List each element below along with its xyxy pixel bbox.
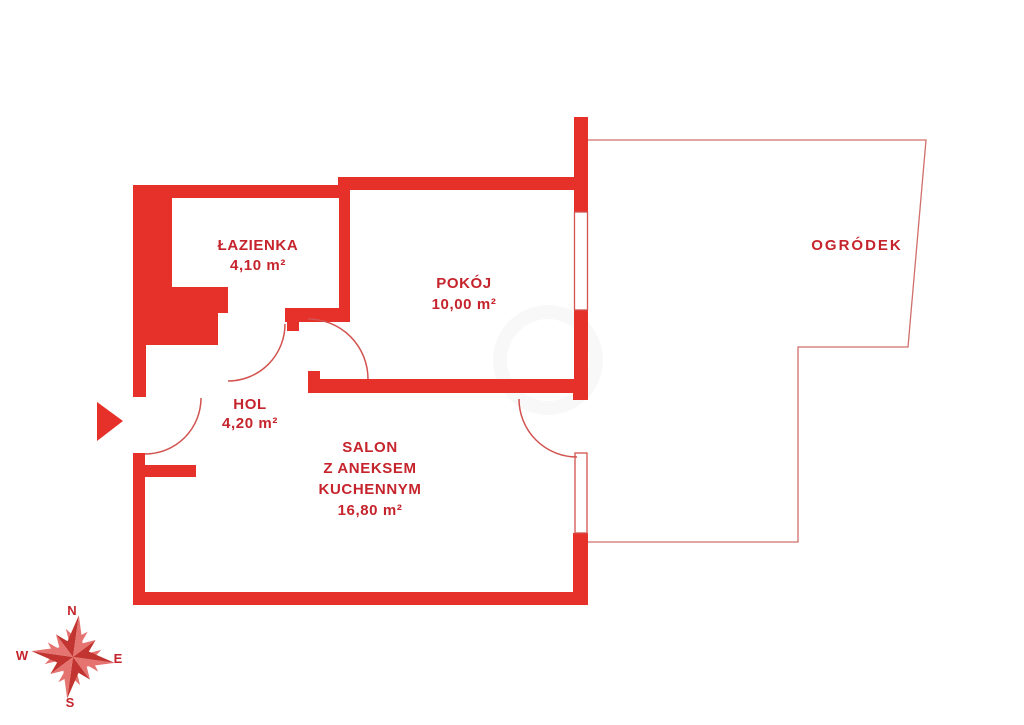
bathroom-door-arc <box>228 324 285 381</box>
wall-bottom <box>133 592 588 605</box>
hol-stub-wall <box>143 465 196 477</box>
pokoj-window <box>575 212 588 310</box>
salon-pokoj-divider-wall <box>308 379 574 393</box>
pokoj-door-arc <box>308 319 368 379</box>
divider-left-stub <box>308 371 320 379</box>
entrance-arrow-icon <box>97 402 123 441</box>
room-name: Z ANEKSEM <box>285 458 455 479</box>
room-name: HOL <box>190 395 310 414</box>
room-area: 16,80 m² <box>285 500 455 521</box>
bathroom-step-wall-lower <box>172 313 218 345</box>
compass-east-label: E <box>110 652 126 666</box>
compass-north-label: N <box>64 604 80 618</box>
room-area: 10,00 m² <box>384 294 544 315</box>
walls <box>133 117 588 605</box>
divider-right-block <box>573 390 588 400</box>
room-name: SALON <box>285 437 455 458</box>
floor-plan-drawing <box>0 0 1024 725</box>
bathroom-left-wall <box>145 185 172 345</box>
wall-right-stub-top <box>574 117 588 212</box>
compass-rose-icon <box>26 610 121 705</box>
room-label-ogrodek: OGRÓDEK <box>777 236 937 256</box>
room-label-lazienka: ŁAZIENKA 4,10 m² <box>178 236 338 276</box>
room-name: POKÓJ <box>384 273 544 294</box>
room-name: ŁAZIENKA <box>178 236 338 256</box>
bathroom-right-wall <box>339 177 350 322</box>
wall-top-right <box>338 177 574 190</box>
room-label-pokoj: POKÓJ 10,00 m² <box>384 273 544 315</box>
garden-outline <box>588 140 926 542</box>
compass-west-label: W <box>14 649 30 663</box>
compass-south-label: S <box>62 696 78 710</box>
room-area: 4,10 m² <box>178 256 338 276</box>
room-label-salon: SALON Z ANEKSEM KUCHENNYM 16,80 m² <box>285 437 455 521</box>
wall-right-middle <box>574 310 588 400</box>
room-area: 4,20 m² <box>190 414 310 433</box>
salon-garden-door-leaf <box>575 453 587 533</box>
wall-left-top <box>133 185 146 397</box>
bathroom-door-hinge-block <box>287 322 299 331</box>
room-name: KUCHENNYM <box>285 479 455 500</box>
room-name: OGRÓDEK <box>777 236 937 256</box>
floor-plan: ŁAZIENKA 4,10 m² POKÓJ 10,00 m² HOL 4,20… <box>0 0 1024 725</box>
room-label-hol: HOL 4,20 m² <box>190 395 310 433</box>
bathroom-step-wall-upper <box>172 287 228 313</box>
